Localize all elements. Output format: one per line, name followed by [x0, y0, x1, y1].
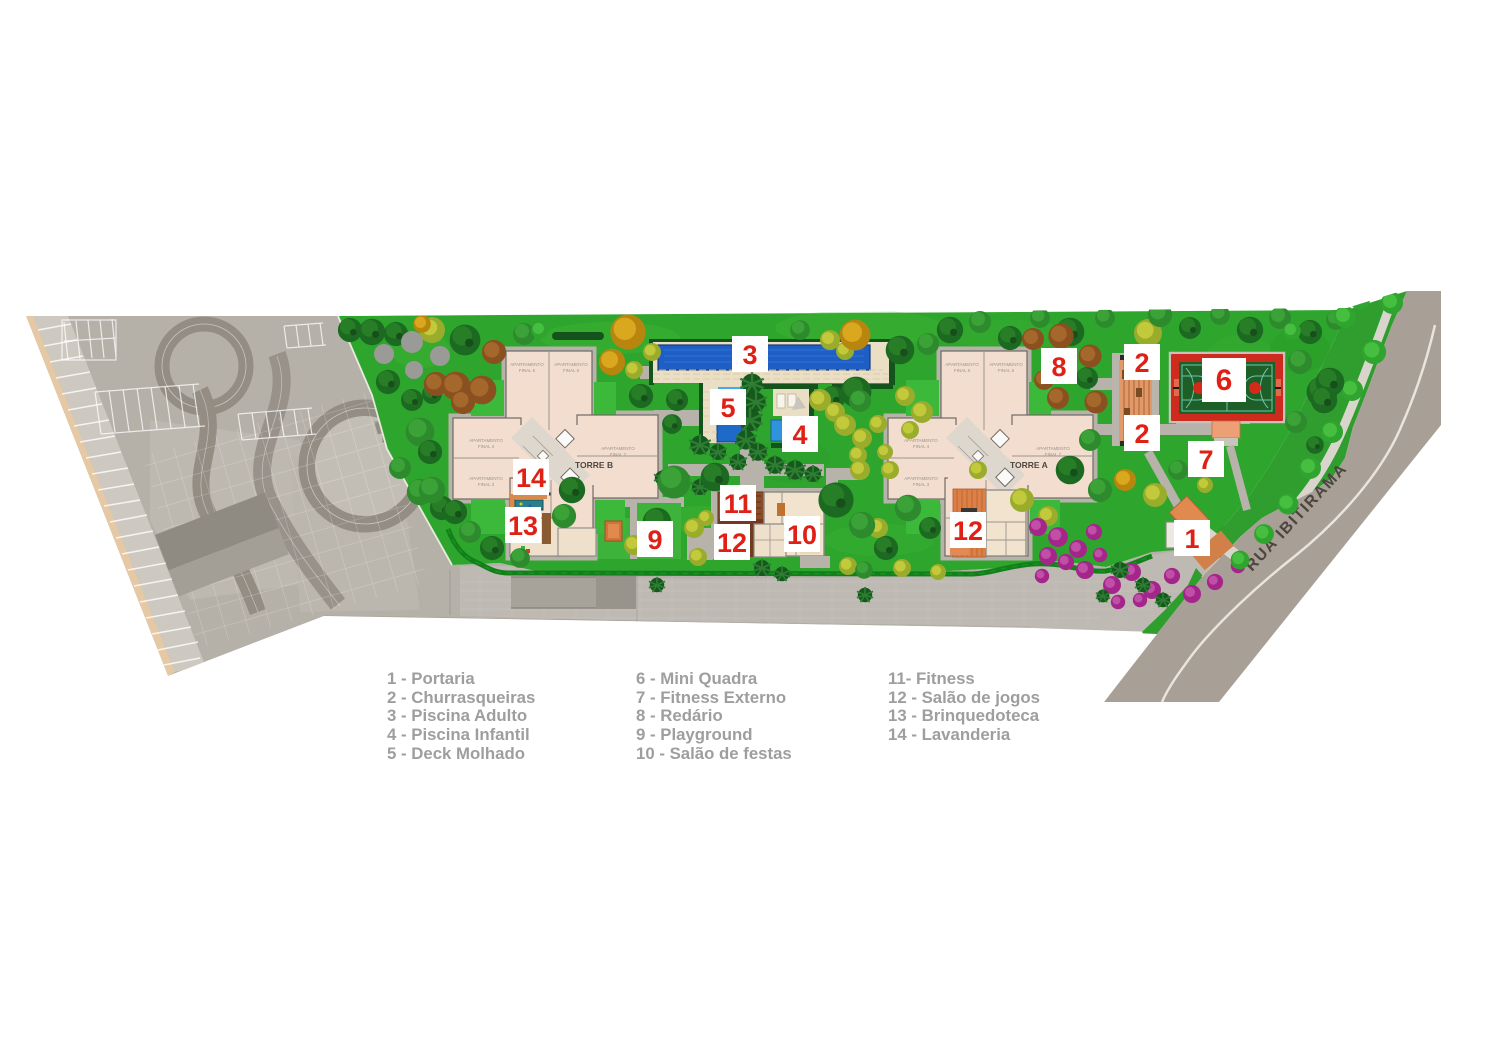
svg-text:2: 2: [1134, 419, 1149, 449]
svg-text:4: 4: [792, 420, 807, 450]
svg-text:4 - Piscina Infantil: 4 - Piscina Infantil: [387, 725, 530, 744]
svg-text:9 - Playground: 9 - Playground: [636, 725, 753, 744]
svg-text:10 - Salão de festas: 10 - Salão de festas: [636, 744, 792, 763]
svg-text:5 - Deck Molhado: 5 - Deck Molhado: [387, 744, 525, 763]
svg-text:3 - Piscina Adulto: 3 - Piscina Adulto: [387, 706, 527, 725]
svg-text:6 - Mini Quadra: 6 - Mini Quadra: [636, 669, 758, 688]
svg-text:10: 10: [787, 520, 817, 550]
svg-text:3: 3: [742, 340, 757, 370]
svg-text:1: 1: [1184, 524, 1199, 554]
svg-text:TORRE B: TORRE B: [575, 460, 613, 470]
svg-text:2: 2: [1134, 348, 1149, 378]
svg-text:14: 14: [516, 463, 546, 493]
svg-text:13 - Brinquedoteca: 13 - Brinquedoteca: [888, 706, 1040, 725]
svg-text:8: 8: [1051, 352, 1066, 382]
svg-text:6: 6: [1216, 364, 1233, 397]
svg-text:2 - Churrasqueiras: 2 - Churrasqueiras: [387, 688, 535, 707]
svg-text:11- Fitness: 11- Fitness: [888, 669, 975, 688]
svg-text:5: 5: [720, 393, 735, 423]
svg-text:8 - Redário: 8 - Redário: [636, 706, 723, 725]
svg-text:13: 13: [508, 511, 538, 541]
svg-text:7: 7: [1198, 445, 1213, 475]
svg-text:1 - Portaria: 1 - Portaria: [387, 669, 475, 688]
svg-text:14 - Lavanderia: 14 - Lavanderia: [888, 725, 1011, 744]
svg-text:12 - Salão de jogos: 12 - Salão de jogos: [888, 688, 1040, 707]
svg-text:11: 11: [724, 489, 753, 519]
svg-text:12: 12: [717, 528, 747, 558]
svg-text:12: 12: [953, 516, 983, 546]
svg-text:7 - Fitness Externo: 7 - Fitness Externo: [636, 688, 786, 707]
svg-text:TORRE A: TORRE A: [1010, 460, 1048, 470]
svg-text:9: 9: [647, 525, 662, 555]
